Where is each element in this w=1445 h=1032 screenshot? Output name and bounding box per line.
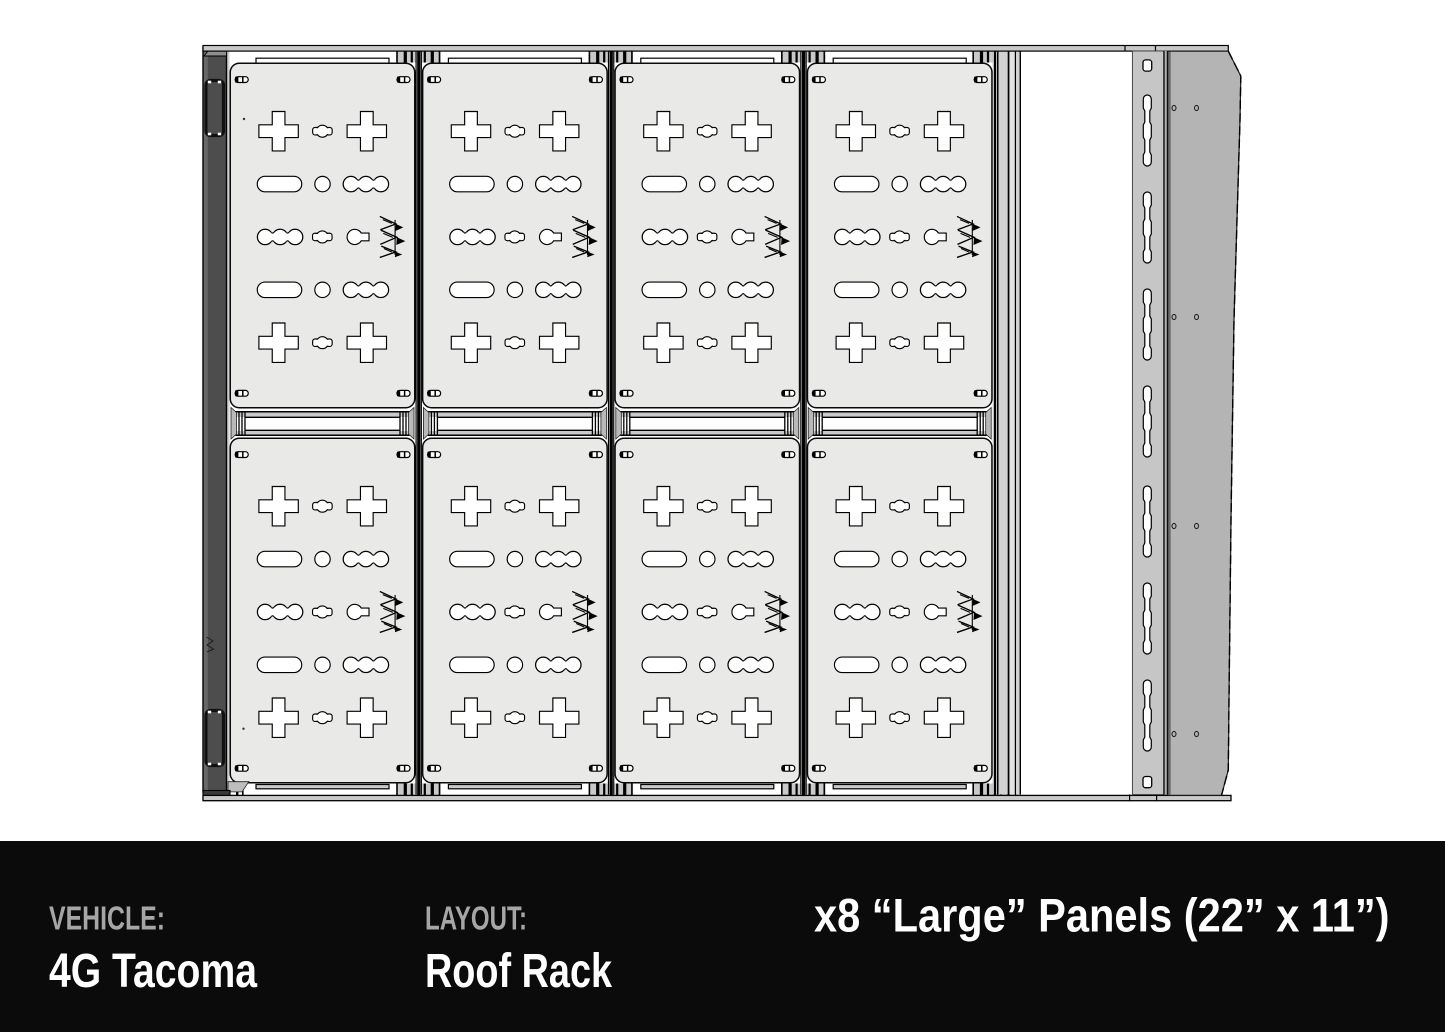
- svg-text:Roof Rack: Roof Rack: [425, 945, 612, 998]
- svg-text:x8 “Large” Panels (22” x 11”): x8 “Large” Panels (22” x 11”): [814, 890, 1390, 943]
- svg-text:LAYOUT:: LAYOUT:: [425, 901, 527, 938]
- svg-text:VEHICLE:: VEHICLE:: [49, 901, 165, 938]
- svg-text:4G Tacoma: 4G Tacoma: [49, 945, 257, 998]
